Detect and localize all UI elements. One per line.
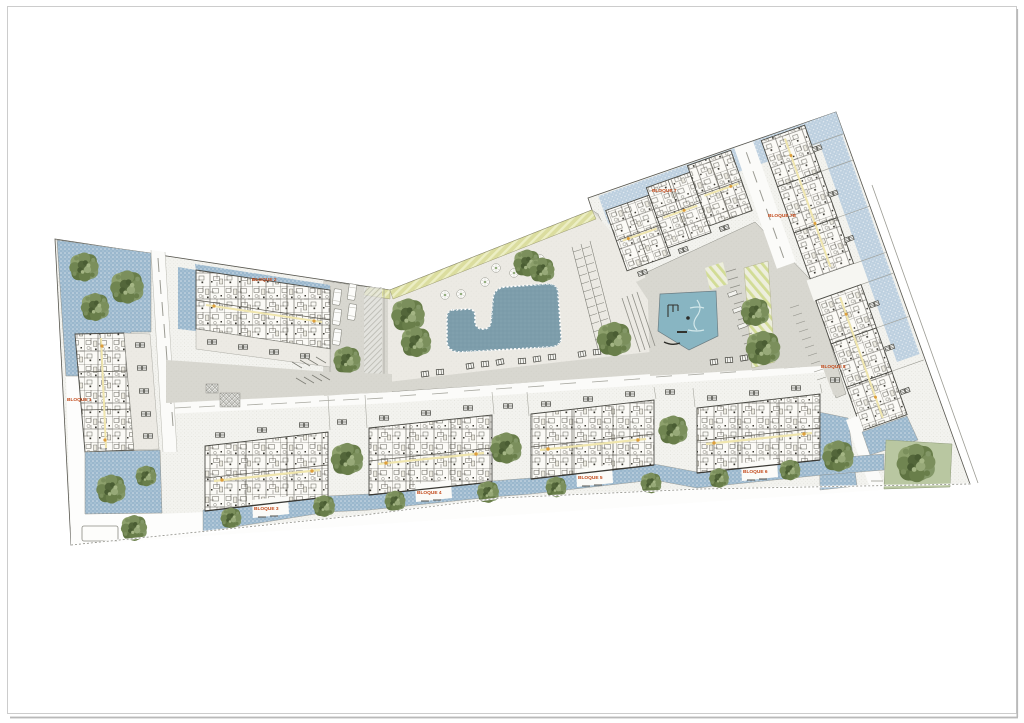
svg-text:BLOQUE 1: BLOQUE 1 [67, 397, 92, 403]
svg-text:BLOQUE 3: BLOQUE 3 [254, 506, 279, 512]
svg-text:BLOQUE 2: BLOQUE 2 [252, 277, 277, 283]
svg-text:BLOQUE 4: BLOQUE 4 [417, 490, 442, 496]
svg-text:BLOQUE 7: BLOQUE 7 [652, 188, 677, 194]
svg-text:BLOQUE 5: BLOQUE 5 [578, 475, 603, 481]
svg-text:BLOQUE 8: BLOQUE 8 [821, 364, 846, 370]
svg-text:BLOQUE 7B: BLOQUE 7B [768, 213, 797, 219]
svg-text:BLOQUE 6: BLOQUE 6 [743, 469, 768, 475]
